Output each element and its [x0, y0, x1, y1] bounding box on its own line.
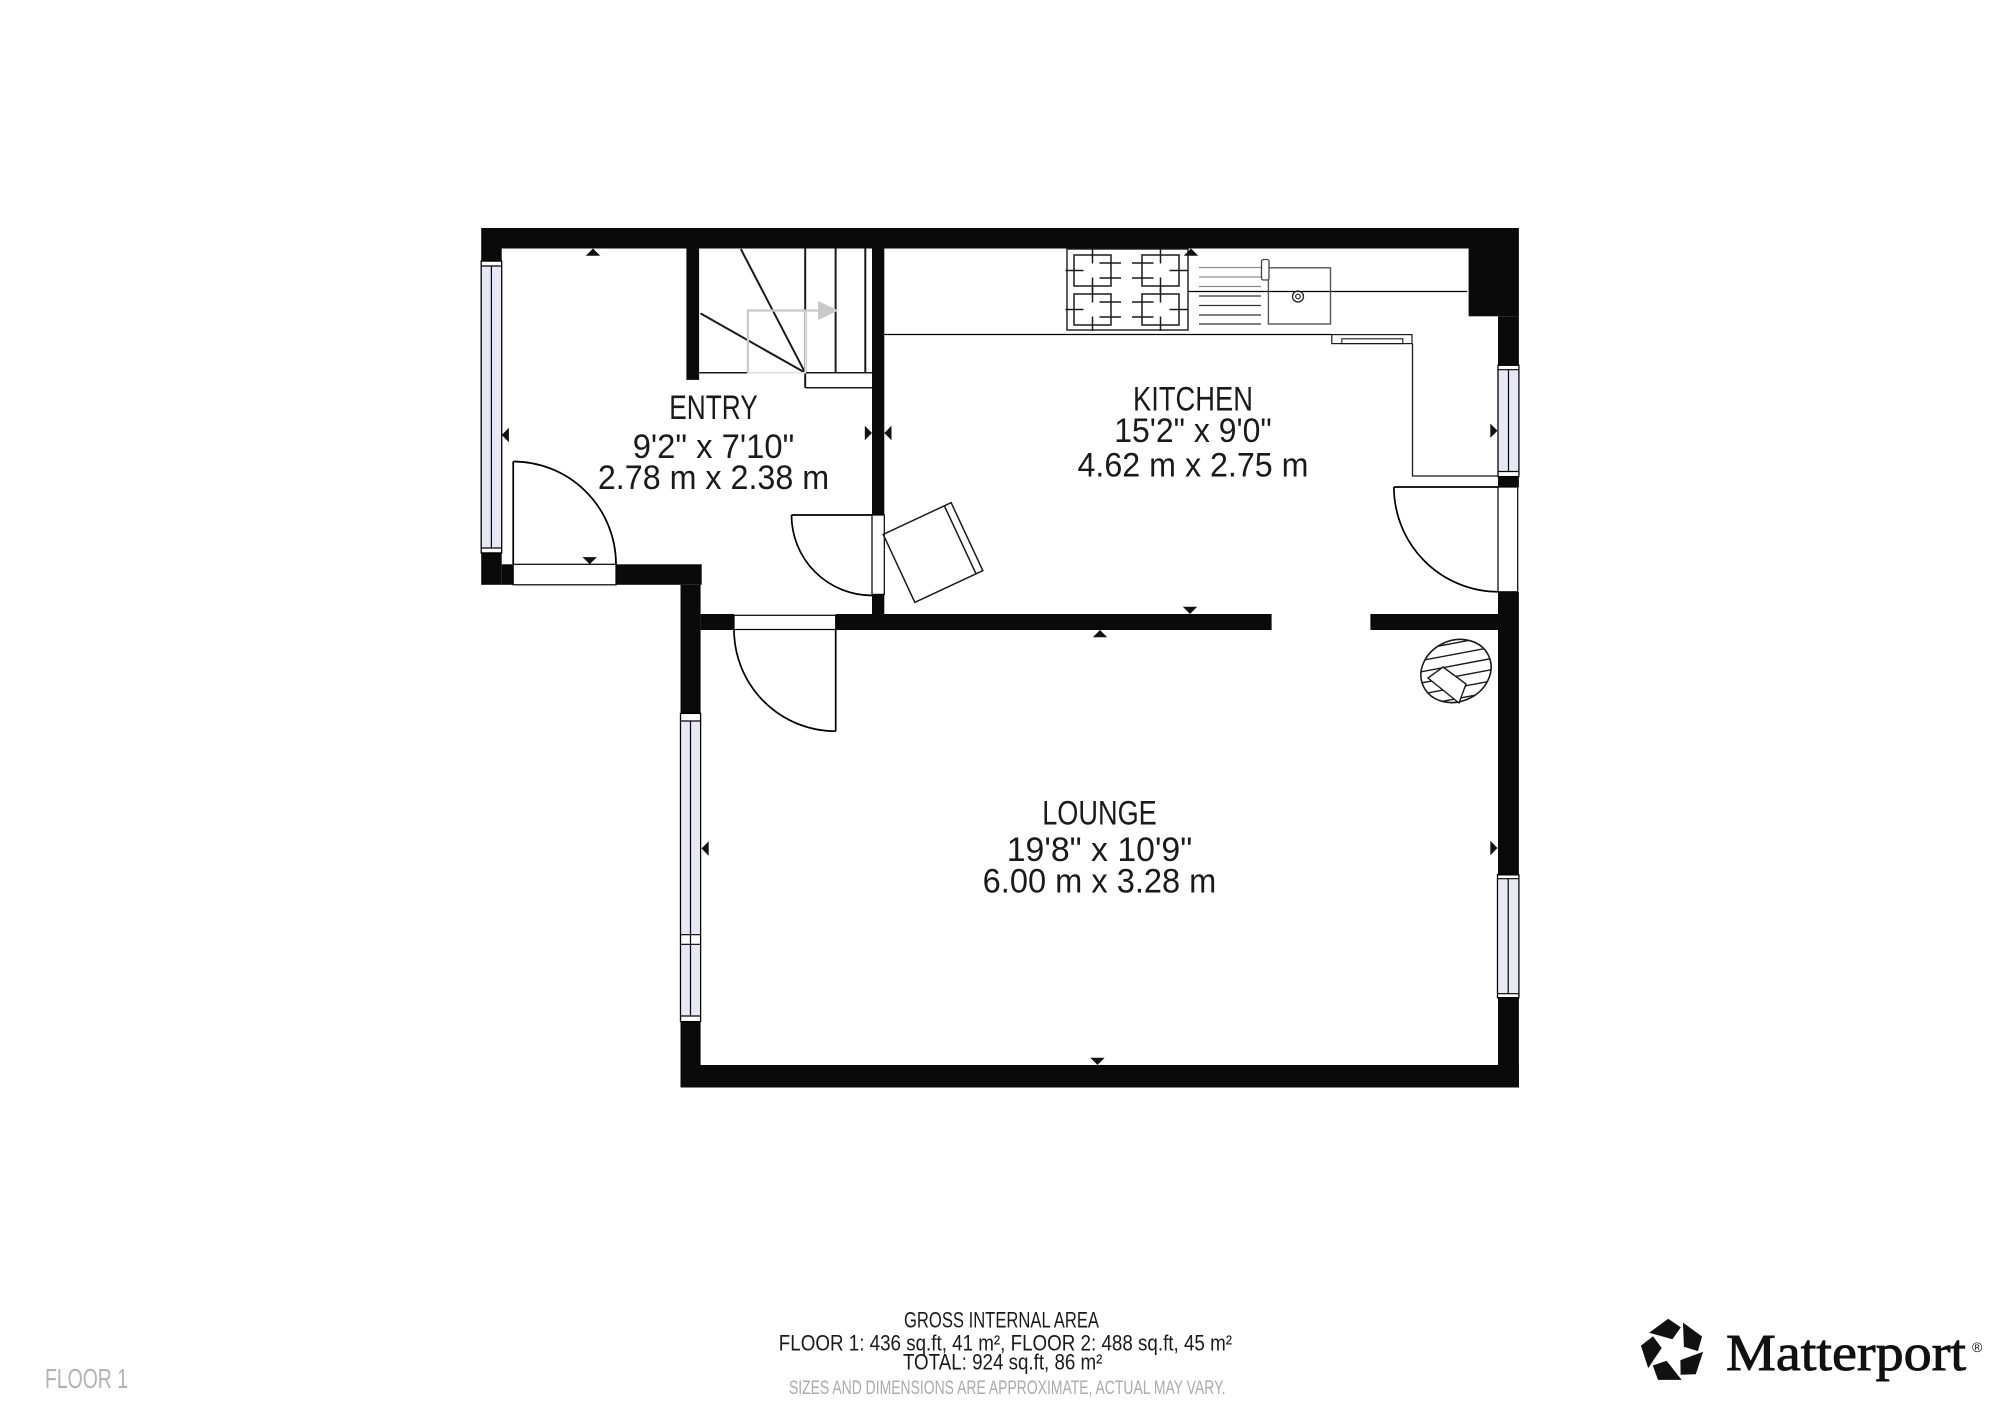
svg-text:Matterport: Matterport — [1726, 1325, 1967, 1382]
svg-text:®: ® — [1972, 1339, 1983, 1355]
svg-text:LOUNGE: LOUNGE — [1042, 794, 1157, 832]
svg-text:ENTRY: ENTRY — [669, 389, 758, 427]
svg-text:2.78 m x 2.38 m: 2.78 m x 2.38 m — [598, 459, 829, 497]
svg-text:6.00 m x 3.28 m: 6.00 m x 3.28 m — [983, 863, 1217, 901]
svg-text:15'2" x 9'0": 15'2" x 9'0" — [1114, 412, 1272, 450]
svg-text:GROSS INTERNAL AREA: GROSS INTERNAL AREA — [904, 1308, 1099, 1333]
svg-text:FLOOR 1: FLOOR 1 — [45, 1363, 128, 1394]
svg-text:SIZES AND DIMENSIONS ARE APPRO: SIZES AND DIMENSIONS ARE APPROXIMATE, AC… — [789, 1377, 1226, 1399]
svg-text:4.62 m x 2.75 m: 4.62 m x 2.75 m — [1078, 446, 1309, 484]
svg-text:TOTAL: 924 sq.ft, 86 m²: TOTAL: 924 sq.ft, 86 m² — [903, 1350, 1103, 1375]
